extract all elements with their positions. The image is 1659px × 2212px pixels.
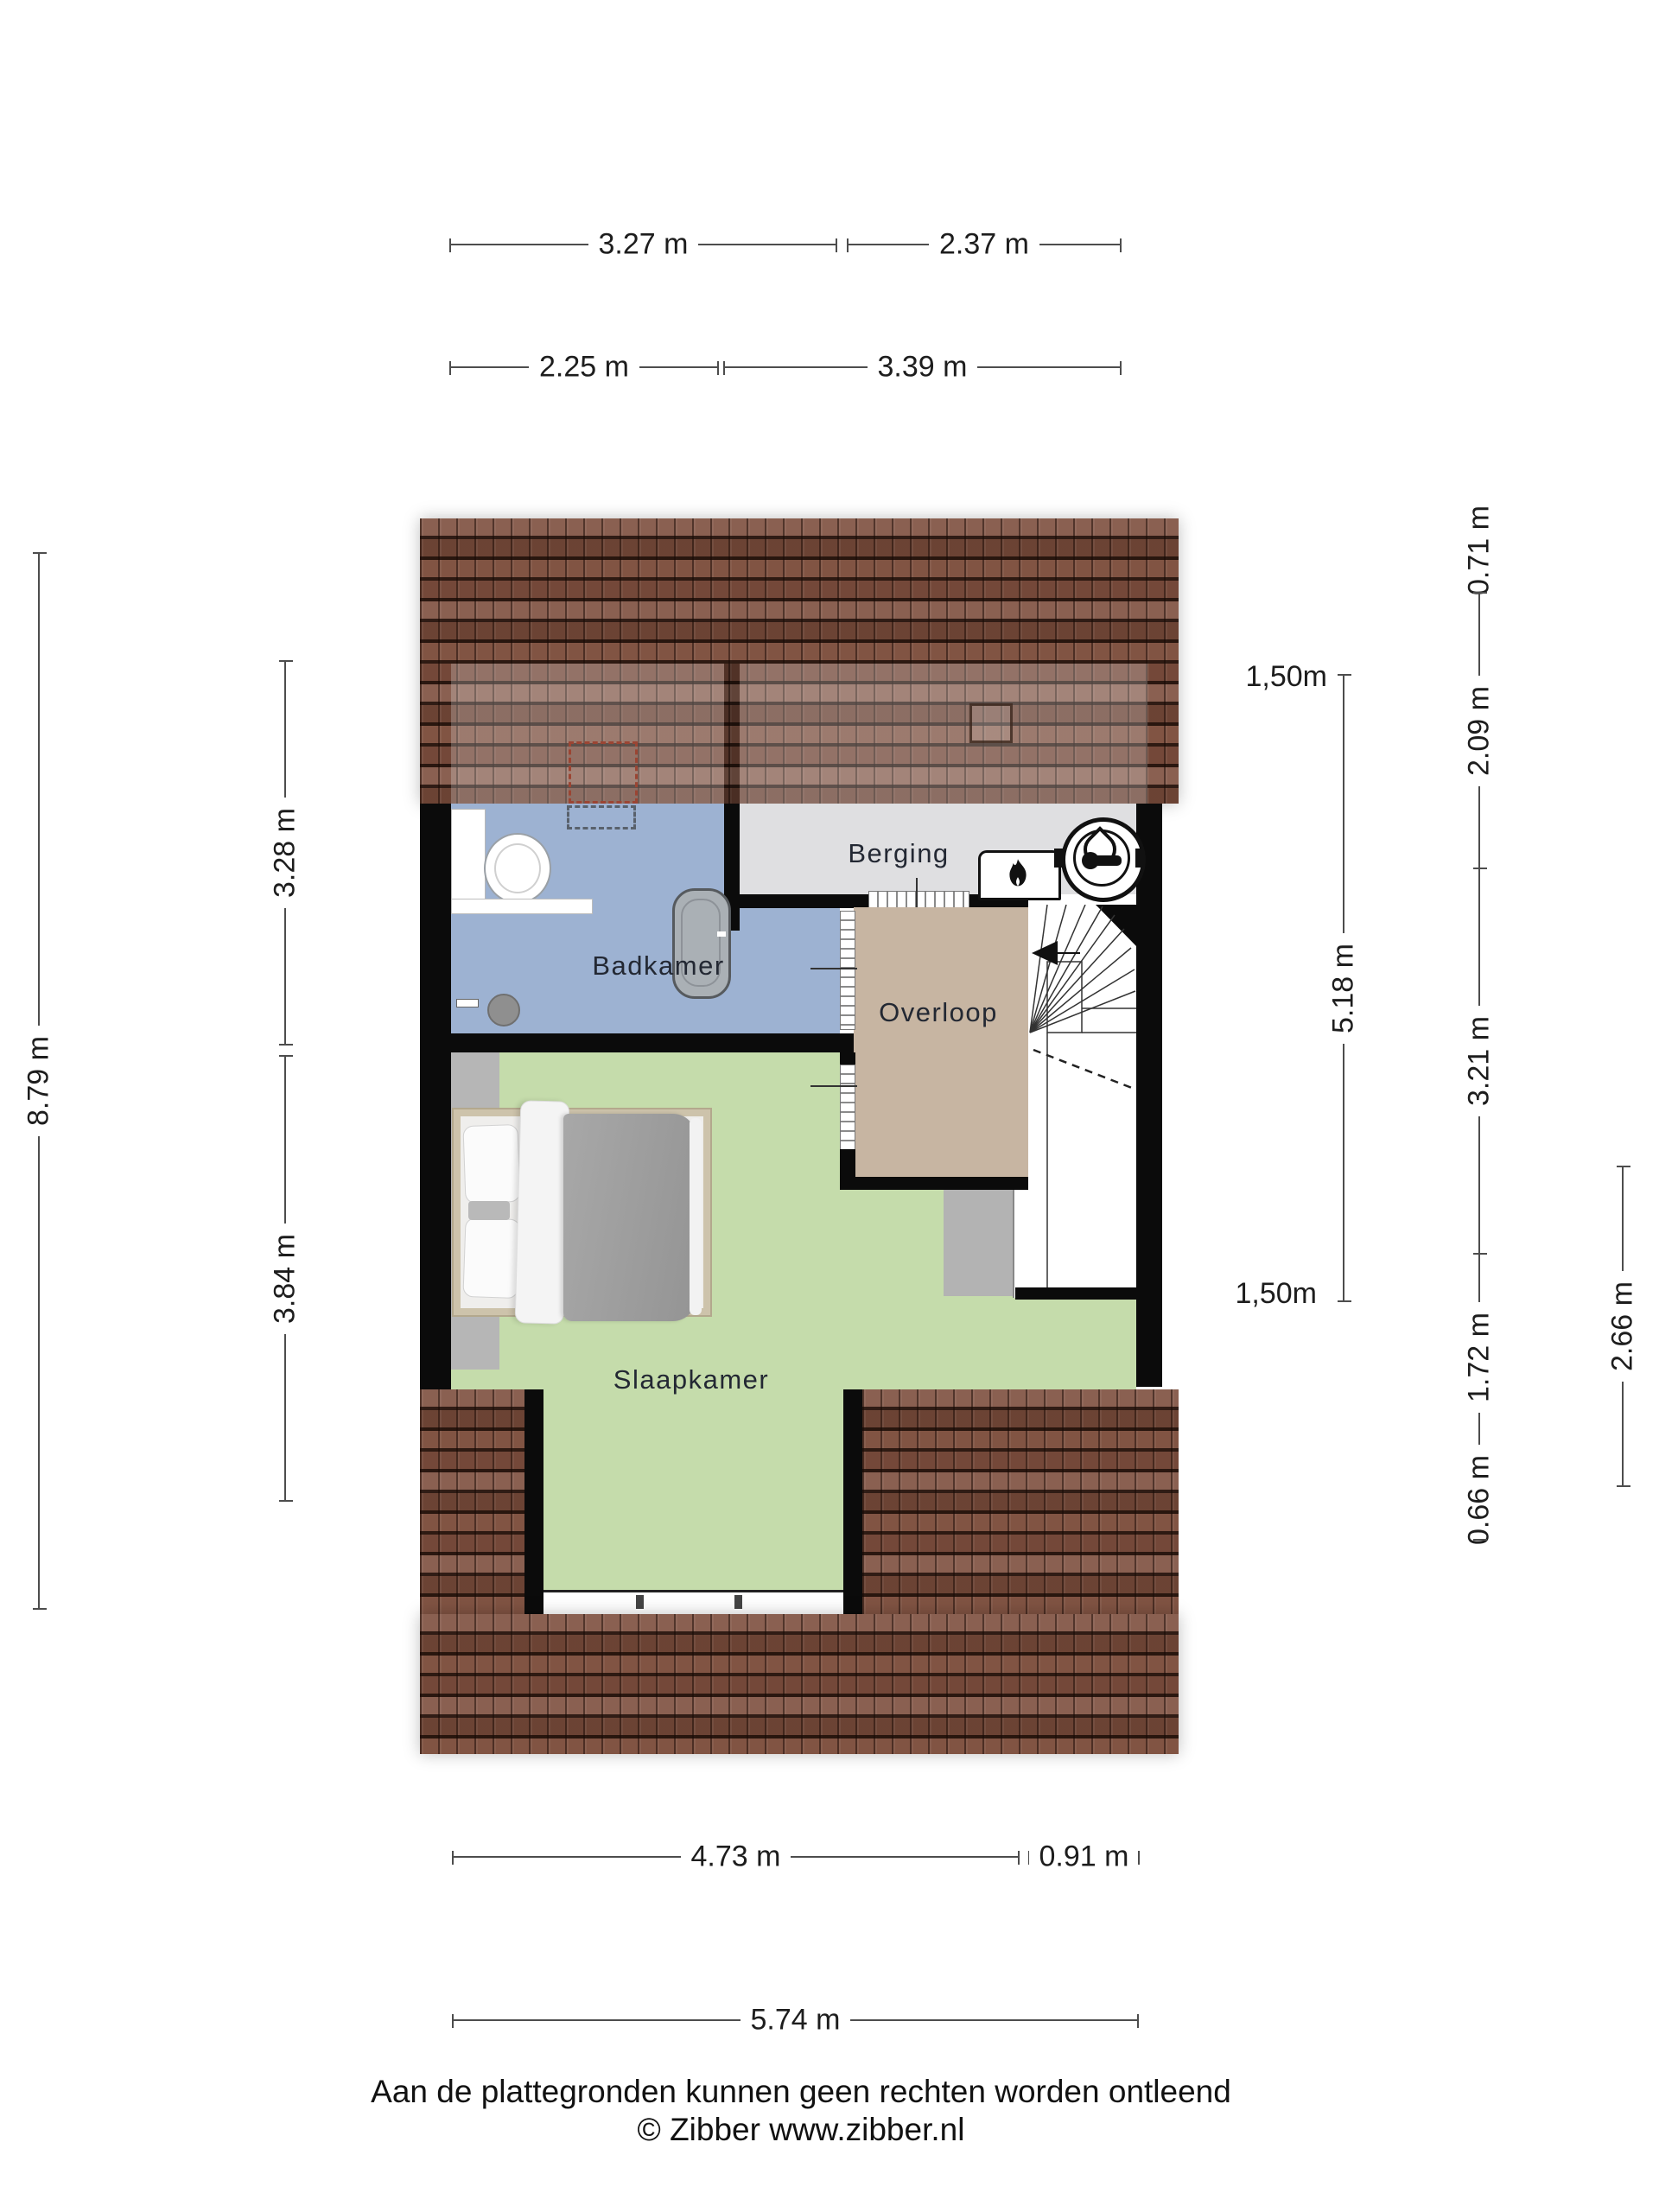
dim-left-outer: 8.79 m [38,553,40,1609]
bathtub-faucet-icon [717,931,726,937]
dormer-floor [543,1389,843,1590]
headroom-marker-top: 1,50m [1246,660,1328,694]
shower-head-icon [456,999,479,1007]
boiler-stem-glyph [1094,855,1122,866]
roof-bottom-left [420,1389,524,1614]
dim-left-inner-bottom: 3.84 m [284,1056,286,1501]
shelf [451,899,593,914]
heater-box [978,850,1061,900]
wall-badkamer-bottom [420,1033,855,1052]
flame-icon [1005,858,1031,889]
headroom-marker-bottom: 1,50m [1236,1277,1318,1311]
dim-top-row1-seg2: 2.37 m [848,244,1121,245]
window-jamb-right [843,1389,862,1614]
window-mullion [734,1595,742,1609]
dim-top-row2-seg2: 3.39 m [724,366,1121,368]
bed [452,1108,712,1317]
wall-overloop-left-mid [840,1052,855,1065]
skylight-dashed-icon [567,805,636,829]
door-slaapkamer-overloop [840,1065,855,1151]
dim-bottom-row2: 5.74 m [453,2019,1138,2021]
door-badkamer-overloop [840,911,855,1030]
door-tick-lower [810,1085,857,1087]
room-badkamer-lobe2 [740,907,840,931]
window-mullion [636,1595,644,1609]
roof-overlay-berging [740,664,1147,804]
roof-bottom-right [862,1389,1179,1614]
dim-right-col-seg1: 0.71 m [1478,507,1480,593]
dim-right-col-seg5: 0.66 m [1478,1460,1480,1540]
door-tick-upper [810,968,857,969]
dim-bottom-row1-seg1: 4.73 m [453,1856,1019,1858]
dim-top-row1-seg1: 3.27 m [450,244,836,245]
bed-sheet [515,1100,570,1324]
dim-bottom-row1-seg2: 0.91 m [1029,1856,1139,1858]
stairwell-edge-strip [1013,1190,1030,1298]
boiler-tab-left [1054,849,1063,868]
room-label-overloop: Overloop [879,997,998,1028]
wall-stairs-bottom [1015,1287,1162,1300]
sloped-ceiling-zone-right [944,1190,1013,1296]
stairs [1028,905,1136,1287]
dim-left-inner-top: 3.28 m [284,661,286,1045]
roof-bottom-band [420,1614,1179,1754]
wall-overloop-bottom [840,1177,1028,1190]
dim-right-col-seg3: 3.21 m [1478,868,1480,1254]
disclaimer-text: Aan de plattegronden kunnen geen rechten… [0,2074,1602,2110]
dim-top-row2-seg1: 2.25 m [450,366,718,368]
pillow [462,1217,520,1299]
boiler-tab-right [1135,849,1144,868]
floorplan-page: 3.27 m 2.37 m 2.25 m 3.39 m 8.79 m 3.28 … [0,0,1659,2212]
dim-right-span: 5.18 m [1343,675,1344,1301]
duvet [563,1114,696,1321]
duvet-edge [690,1118,702,1315]
wall-left [420,804,451,1389]
roof-window-dashed-icon [569,741,638,804]
room-badkamer-lobe [724,931,840,1033]
window-jamb-left [524,1389,543,1614]
dim-right-col-seg4: 1.72 m [1478,1254,1480,1460]
room-label-badkamer: Badkamer [592,950,724,982]
room-label-berging: Berging [848,838,949,869]
dim-right-outer: 2.66 m [1622,1166,1624,1486]
toilet-seat [494,843,541,893]
dim-right-col-seg2: 2.09 m [1478,593,1480,868]
chimney-outline-icon [969,703,1013,743]
copyright-text: © Zibber www.zibber.nl [0,2112,1602,2148]
bed-cushion [468,1201,510,1220]
room-label-slaapkamer: Slaapkamer [613,1364,769,1395]
room-overloop [854,907,1028,1177]
pillow [462,1124,520,1204]
shower-icon [487,994,520,1027]
roof-overlay-divider [724,664,740,804]
